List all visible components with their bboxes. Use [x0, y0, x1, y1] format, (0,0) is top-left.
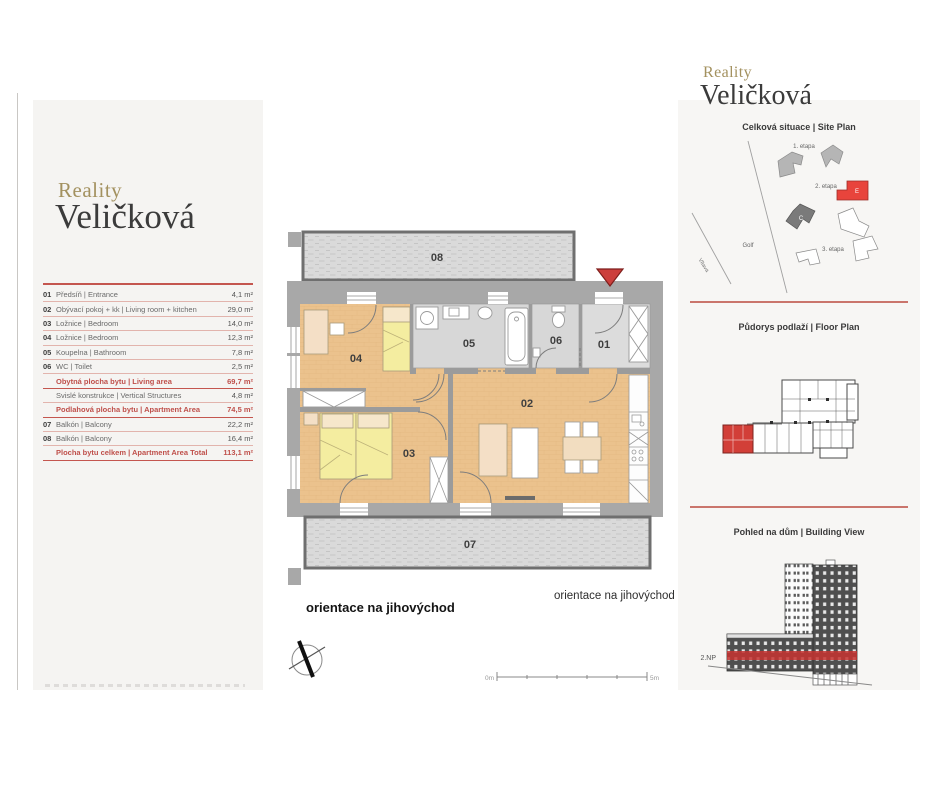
room-name: Předsíň | Entrance — [56, 290, 232, 299]
table-row-balcony1: 07Balkón | Balcony22,2 m² — [43, 418, 253, 432]
room-name: WC | Toilet — [56, 362, 232, 371]
scale-start-label: 0m — [485, 675, 494, 682]
room-label-06: 06 — [550, 335, 562, 347]
table-row-bathroom: 05Koupelna | Bathroom7,8 m² — [43, 346, 253, 360]
building-e-label: E — [855, 189, 859, 195]
left-divider-line — [17, 93, 18, 690]
room-area: 14,0 m² — [228, 319, 253, 328]
table-row-bedroom1: 03Ložnice | Bedroom14,0 m² — [43, 317, 253, 331]
room-area: 2,5 m² — [232, 362, 253, 371]
room-number: 05 — [43, 348, 56, 357]
etapa1-label: 1. etapa — [793, 144, 815, 150]
room-area: 22,2 m² — [228, 420, 253, 429]
highlighted-apartment — [723, 425, 753, 453]
building-elevation: 2.NP — [690, 545, 910, 695]
room-number: 06 — [43, 362, 56, 371]
room-area: 4,8 m² — [232, 391, 253, 400]
room-label-08: 08 — [431, 252, 443, 264]
room-label-07: 07 — [464, 539, 476, 551]
table-row-wc: 06WC | Toilet2,5 m² — [43, 360, 253, 374]
table-row-area-total: Plocha bytu celkem | Apartment Area Tota… — [43, 446, 253, 460]
table-row-structures: Svislé konstrukce | Vertical Structures4… — [43, 389, 253, 403]
room-name: Svislé konstrukce | Vertical Structures — [56, 391, 232, 400]
river-label: Vltava — [697, 257, 711, 274]
floor-plan-title: Půdorys podlaží | Floor Plan — [678, 322, 920, 332]
room-name: Koupelna | Bathroom — [56, 348, 232, 357]
total-area: 113,1 m² — [223, 448, 253, 457]
table-row-apartment-area: Podlahová plocha bytu | Apartment Area74… — [43, 403, 253, 417]
total-area: 69,7 m² — [227, 377, 253, 386]
room-area: 4,1 m² — [232, 290, 253, 299]
table-row-living-area-total: Obytná plocha bytu | Living area69,7 m² — [43, 374, 253, 388]
area-table: 01Předsíň | Entrance4,1 m² 02Obývací pok… — [43, 288, 253, 461]
building-stilts — [813, 674, 857, 685]
scale-end-label: 5m — [650, 675, 659, 682]
section-rule-1 — [690, 301, 908, 303]
room-area: 12,3 m² — [228, 333, 253, 342]
etapa2-label: 2. etapa — [815, 184, 837, 190]
page: Reality Veličková 01Předsíň | Entrance4,… — [0, 0, 940, 788]
apartment-floorplan: 08 04 05 06 01 02 03 07 — [275, 225, 675, 590]
room-label-03: 03 — [403, 448, 415, 460]
room-label-04: 04 — [350, 353, 363, 365]
room-number: 03 — [43, 319, 56, 328]
orientation-note-bold: orientace na jihovýchod — [306, 600, 455, 615]
room-label-02: 02 — [521, 398, 533, 410]
floor-level-label: 2.NP — [700, 655, 716, 662]
room-area: 16,4 m² — [228, 434, 253, 443]
highlighted-floor-strip — [727, 651, 857, 660]
room-number: 01 — [43, 290, 56, 299]
site-building-e — [837, 181, 868, 200]
building-floorplan-overview — [700, 345, 900, 470]
site-building-1a — [778, 152, 803, 177]
room-number: 04 — [43, 333, 56, 342]
brand-velickova-right: Veličková — [700, 80, 812, 112]
building-view-title: Pohled na dům | Building View — [678, 527, 920, 537]
kitchen-counter — [629, 375, 648, 503]
table-row-bedroom2: 04Ložnice | Bedroom12,3 m² — [43, 331, 253, 345]
room-area: 7,8 m² — [232, 348, 253, 357]
site-plan-title: Celková situace | Site Plan — [678, 122, 920, 132]
site-labels: 1. etapa 2. etapa 3. etapa Golf Vltava E… — [697, 144, 859, 274]
orientation-note: orientace na jihovýchod — [554, 590, 675, 602]
scale-bar: 0m 5m — [476, 666, 660, 684]
fineprint-placeholder — [45, 684, 245, 687]
compass-icon — [283, 636, 331, 684]
room-name: Obývací pokoj + kk | Living room + kitch… — [56, 305, 228, 314]
total-label: Podlahová plocha bytu | Apartment Area — [56, 405, 227, 414]
entrance-wardrobe — [629, 306, 648, 362]
table-row-balcony2: 08Balkón | Balcony16,4 m² — [43, 432, 253, 446]
left-panel: Reality Veličková 01Předsíň | Entrance4,… — [33, 100, 263, 690]
golf-label: Golf — [742, 243, 753, 249]
table-row-living: 02Obývací pokoj + kk | Living room + kit… — [43, 302, 253, 316]
room-number: 02 — [43, 305, 56, 314]
room-label-05: 05 — [463, 338, 475, 350]
room-name: Ložnice | Bedroom — [56, 333, 228, 342]
balcony-07 — [288, 517, 650, 585]
room-number: 07 — [43, 420, 56, 429]
room-number: 08 — [43, 434, 56, 443]
table-row-entrance: 01Předsíň | Entrance4,1 m² — [43, 288, 253, 302]
etapa3-label: 3. etapa — [822, 247, 844, 253]
total-label: Obytná plocha bytu | Living area — [56, 377, 227, 386]
room-name: Balkón | Balcony — [56, 434, 228, 443]
total-label: Plocha bytu celkem | Apartment Area Tota… — [56, 448, 223, 457]
building-c-label: C — [799, 216, 804, 222]
site-plan-map: 1. etapa 2. etapa 3. etapa Golf Vltava E… — [680, 135, 920, 295]
total-area: 74,5 m² — [227, 405, 253, 414]
room-name: Balkón | Balcony — [56, 420, 228, 429]
hall-wardrobe — [303, 391, 365, 407]
room-area: 29,0 m² — [228, 305, 253, 314]
site-building-1b — [821, 145, 843, 167]
table-top-rule — [43, 283, 253, 285]
room-name: Ložnice | Bedroom — [56, 319, 228, 328]
section-rule-2 — [690, 506, 908, 508]
room-label-01: 01 — [598, 339, 610, 351]
brand-velickova: Veličková — [55, 197, 195, 237]
